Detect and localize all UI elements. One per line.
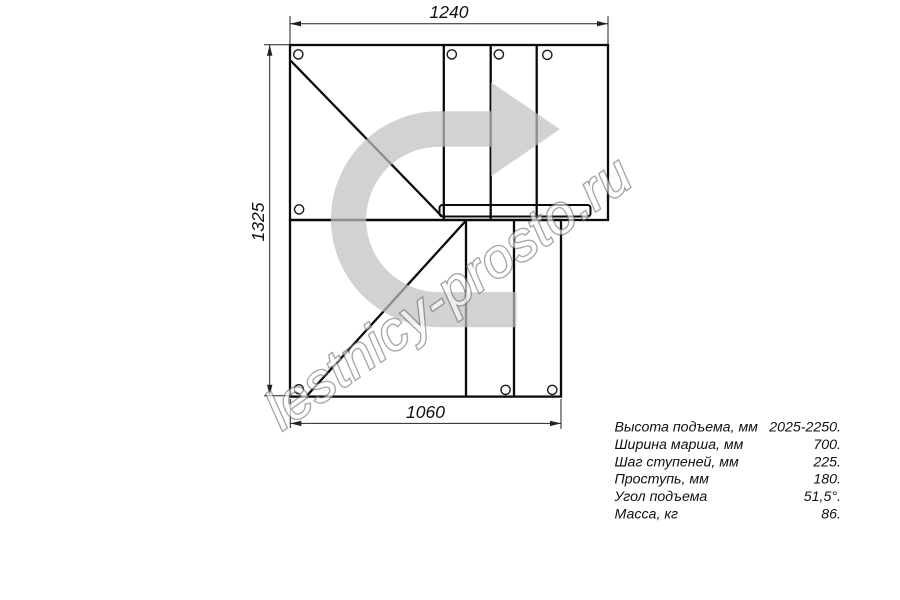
svg-text:Проступь, мм: Проступь, мм [615, 472, 710, 488]
svg-text:700.: 700. [813, 437, 841, 453]
svg-text:1325: 1325 [248, 202, 268, 241]
svg-text:Ширина марша, мм: Ширина марша, мм [615, 437, 744, 453]
svg-text:1240: 1240 [430, 2, 469, 22]
svg-text:2025-2250.: 2025-2250. [768, 420, 841, 436]
svg-text:86.: 86. [821, 506, 841, 522]
svg-text:1060: 1060 [406, 402, 445, 422]
svg-text:Угол подъема: Угол подъема [614, 489, 708, 505]
svg-text:225.: 225. [812, 454, 841, 470]
svg-text:180.: 180. [813, 472, 841, 488]
svg-text:Высота подъема, мм: Высота подъема, мм [615, 420, 759, 436]
svg-text:51,5°.: 51,5°. [804, 489, 841, 505]
svg-text:Масса, кг: Масса, кг [615, 506, 679, 522]
svg-text:Шаг ступеней, мм: Шаг ступеней, мм [615, 454, 739, 470]
